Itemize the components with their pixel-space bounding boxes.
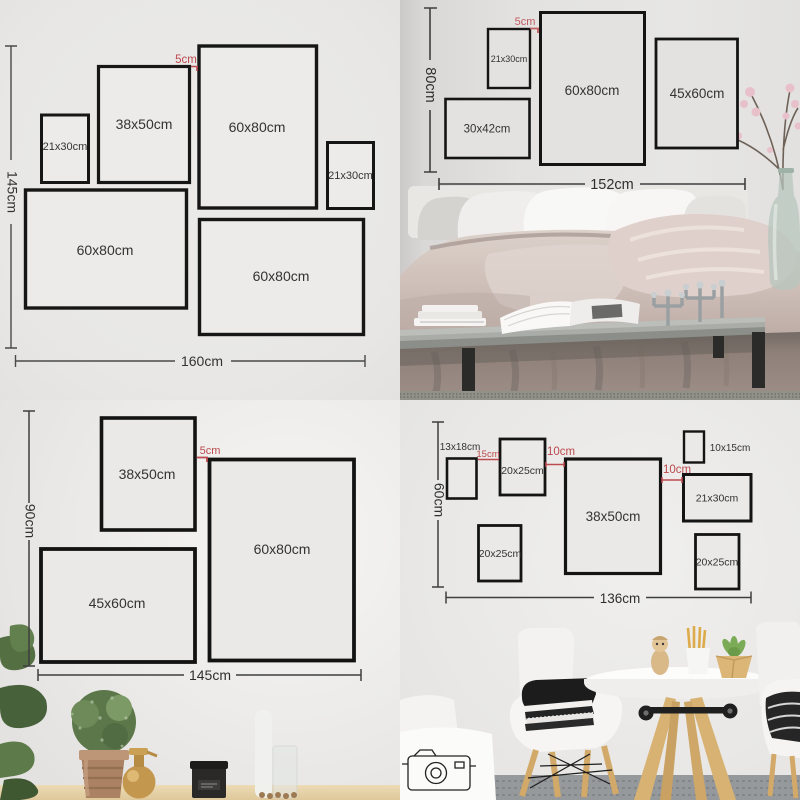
svg-text:60cm: 60cm: [431, 483, 447, 517]
svg-text:13x18cm: 13x18cm: [440, 442, 481, 453]
svg-text:38x50cm: 38x50cm: [119, 466, 176, 482]
svg-text:21x30cm: 21x30cm: [328, 170, 373, 182]
svg-text:45x60cm: 45x60cm: [89, 595, 146, 611]
svg-text:80cm: 80cm: [422, 67, 438, 102]
svg-text:21x30cm: 21x30cm: [491, 54, 528, 64]
svg-text:145cm: 145cm: [189, 667, 231, 683]
svg-text:152cm: 152cm: [590, 177, 634, 193]
svg-text:60x80cm: 60x80cm: [229, 119, 286, 135]
svg-text:60x80cm: 60x80cm: [253, 268, 310, 284]
svg-text:5cm: 5cm: [200, 445, 221, 457]
svg-text:145cm: 145cm: [4, 171, 20, 213]
svg-text:60x80cm: 60x80cm: [565, 83, 620, 98]
svg-text:10x15cm: 10x15cm: [710, 443, 751, 454]
svg-text:90cm: 90cm: [22, 504, 38, 538]
svg-text:21x30cm: 21x30cm: [43, 141, 88, 153]
svg-text:136cm: 136cm: [600, 591, 641, 606]
svg-text:20x25cm: 20x25cm: [479, 548, 522, 560]
svg-text:38x50cm: 38x50cm: [586, 509, 641, 524]
svg-text:21x30cm: 21x30cm: [696, 493, 739, 505]
svg-text:15cm: 15cm: [476, 449, 499, 460]
svg-text:10cm: 10cm: [547, 446, 575, 458]
svg-text:38x50cm: 38x50cm: [116, 116, 173, 132]
svg-text:20x25cm: 20x25cm: [501, 465, 544, 477]
svg-text:5cm: 5cm: [175, 54, 197, 66]
svg-text:160cm: 160cm: [181, 353, 223, 369]
svg-text:30x42cm: 30x42cm: [464, 124, 511, 136]
svg-text:60x80cm: 60x80cm: [77, 242, 134, 258]
svg-text:20x25cm: 20x25cm: [696, 557, 739, 569]
svg-text:45x60cm: 45x60cm: [670, 86, 725, 101]
svg-text:10cm: 10cm: [663, 464, 691, 476]
svg-text:60x80cm: 60x80cm: [254, 541, 311, 557]
svg-text:5cm: 5cm: [515, 16, 536, 28]
